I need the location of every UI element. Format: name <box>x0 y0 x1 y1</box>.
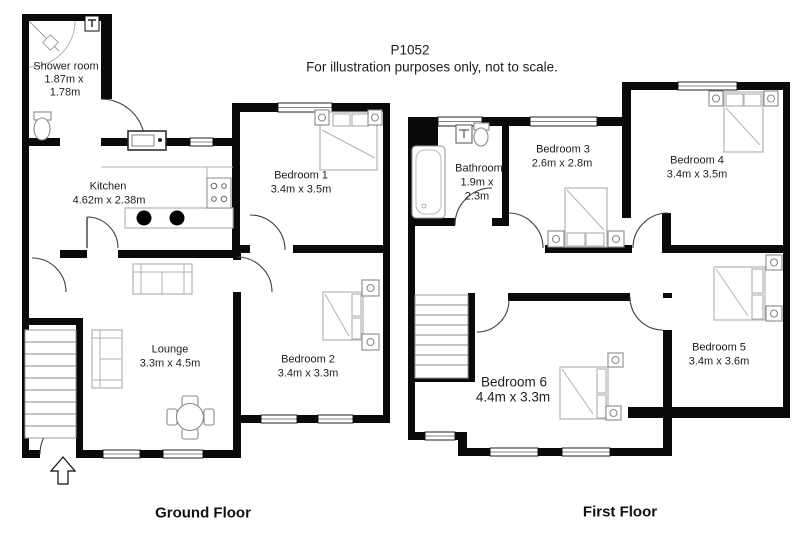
window-icon <box>678 82 737 90</box>
bed-icon <box>714 255 782 321</box>
room-dims-bedroom6: 4.4m x 3.3m <box>476 391 550 404</box>
bathtub-icon <box>412 146 445 218</box>
bed-icon <box>560 353 623 420</box>
door-arc <box>32 258 66 292</box>
room-dims-kitchen: 4.62m x 2.38m <box>73 195 146 208</box>
room-dims-shower-1: 1.87m x <box>44 74 83 87</box>
ground-floor-title: Ground Floor <box>155 507 251 520</box>
room-dims-bedroom3: 2.6m x 2.8m <box>532 158 593 171</box>
floorplan-canvas: P1052 For illustration purposes only, no… <box>0 0 800 536</box>
first-floor-title: First Floor <box>583 506 657 519</box>
hob-icon <box>207 178 231 208</box>
door-arc <box>87 217 118 248</box>
floorplan-drawing <box>0 0 800 536</box>
first-floor-plan <box>408 82 790 456</box>
toilet-icon <box>474 123 489 146</box>
radiator-icon <box>85 16 99 31</box>
kitchen-sink-icon <box>128 131 166 150</box>
toilet-icon <box>34 112 51 140</box>
room-label-kitchen: Kitchen <box>90 181 127 194</box>
window-icon <box>261 415 297 423</box>
room-dims-shower-2: 1.78m <box>50 87 81 100</box>
window-icon <box>425 432 455 440</box>
room-dims-bedroom1: 3.4m x 3.5m <box>271 184 332 197</box>
sofa-icon <box>133 264 192 294</box>
door-arc <box>250 215 285 250</box>
window-icon <box>490 448 538 456</box>
door-arc <box>237 257 272 292</box>
entrance-arrow-icon <box>51 457 75 484</box>
bed-icon <box>315 110 382 170</box>
door-arc <box>508 213 543 248</box>
kitchen-stool-icon <box>170 211 185 226</box>
room-label-bedroom5: Bedroom 5 <box>692 342 746 355</box>
door-arc <box>630 297 663 330</box>
bed-icon <box>323 280 379 350</box>
room-dims-lounge: 3.3m x 4.5m <box>140 358 201 371</box>
disclaimer: For illustration purposes only, not to s… <box>306 61 558 74</box>
room-dims-bedroom5: 3.4m x 3.6m <box>689 356 750 369</box>
first-floor-doors <box>455 188 668 332</box>
kitchen-stool-icon <box>137 211 152 226</box>
room-label-lounge: Lounge <box>152 344 189 357</box>
room-label-bedroom2: Bedroom 2 <box>281 354 335 367</box>
basin-icon <box>456 125 472 143</box>
window-icon <box>163 450 203 458</box>
room-label-shower: Shower room <box>33 61 98 74</box>
dining-table-icon <box>167 396 214 439</box>
sofa-icon <box>92 330 122 388</box>
room-dims-bedroom2: 3.4m x 3.3m <box>278 368 339 381</box>
plan-id: P1052 <box>390 44 429 57</box>
window-icon <box>530 117 597 126</box>
window-icon <box>190 138 213 146</box>
door-arc <box>477 300 509 332</box>
window-icon <box>562 448 610 456</box>
window-icon <box>103 450 140 458</box>
window-icon <box>318 415 353 423</box>
room-dims-bedroom4: 3.4m x 3.5m <box>667 169 728 182</box>
room-dims-bathroom-1: 1.9m x <box>460 177 493 190</box>
bed-icon <box>709 91 778 152</box>
stairs-icon <box>415 295 468 378</box>
room-label-bedroom4: Bedroom 4 <box>670 155 724 168</box>
room-label-bedroom6: Bedroom 6 <box>481 376 547 389</box>
bed-icon <box>548 188 624 247</box>
room-label-bathroom: Bathroom <box>455 163 503 176</box>
room-label-bedroom1: Bedroom 1 <box>274 170 328 183</box>
room-dims-bathroom-2: 2.3m <box>465 191 489 204</box>
room-label-bedroom3: Bedroom 3 <box>536 144 590 157</box>
stairs-icon <box>25 330 76 438</box>
